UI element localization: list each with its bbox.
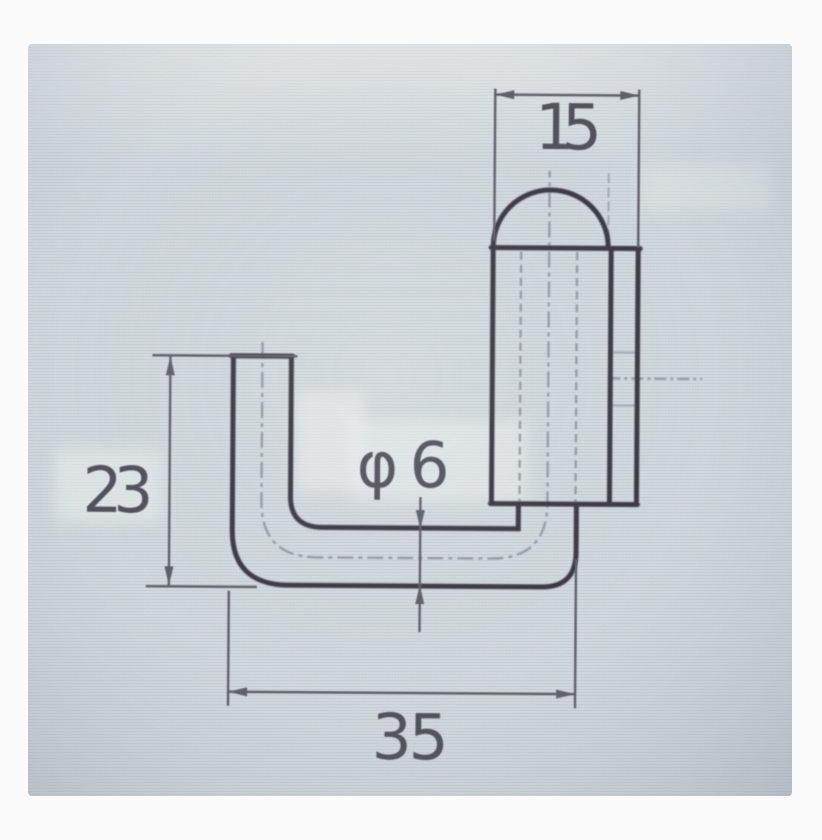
hook-part-drawing: 15 23 35 φ6 bbox=[0, 0, 822, 840]
drawing-photo: 15 23 35 φ6 bbox=[0, 0, 822, 840]
vignette-overlay bbox=[28, 44, 792, 796]
